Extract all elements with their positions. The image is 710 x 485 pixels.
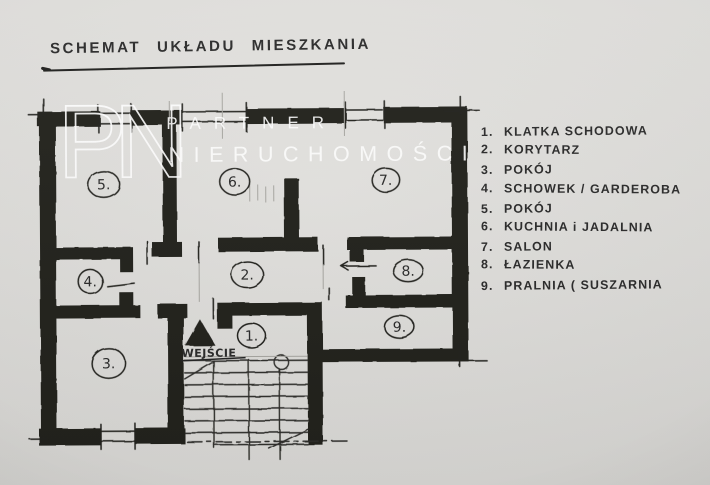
legend-item-number: 4. — [481, 181, 497, 196]
legend-item-label: PRALNIA ( SUSZARNIA — [504, 277, 663, 293]
legend-item-number: 9. — [481, 278, 497, 293]
legend-item-number: 6. — [481, 219, 497, 234]
legend-item-number: 1. — [481, 125, 497, 140]
room-numbers: 1. 2. 3. 4. 5. 6. 7. 8. 9. — [83, 173, 415, 373]
legend-item: 2.KORYTARZ — [481, 142, 706, 158]
legend-item-number: 3. — [481, 163, 497, 178]
legend: 1.KLATKA SCHODOWA 2.KORYTARZ 3.POKÓJ 4.S… — [481, 124, 706, 297]
legend-item: 5.POKÓJ — [481, 200, 706, 217]
room-number-3: 3. — [102, 356, 115, 372]
watermark-monogram: PN — [57, 84, 181, 201]
room-number-1: 1. — [245, 329, 258, 345]
room-number-9: 9. — [393, 320, 406, 336]
legend-item-label: ŁAZIENKA — [504, 258, 576, 273]
legend-item: 9.PRALNIA ( SUSZARNIA — [481, 277, 706, 294]
room-number-2: 2. — [240, 268, 253, 284]
legend-item-label: SALON — [504, 239, 553, 254]
entrance-label-group: WEJŚCIE — [181, 347, 246, 361]
legend-item-label: POKÓJ — [504, 201, 553, 216]
legend-item-label: KLATKA SCHODOWA — [504, 124, 648, 140]
entrance-arrow-icon — [185, 320, 215, 346]
legend-item: 1.KLATKA SCHODOWA — [481, 123, 706, 140]
legend-item-label: KORYTARZ — [504, 143, 580, 158]
watermark-text-partner: PARTNER — [166, 113, 337, 133]
legend-item-number: 2. — [481, 142, 497, 157]
legend-item-number: 5. — [481, 202, 497, 217]
staircase — [185, 355, 349, 460]
cut-line — [187, 441, 348, 442]
stair-newel — [275, 355, 289, 369]
legend-item-label: SCHOWEK / GARDEROBA — [504, 181, 681, 197]
legend-item-label: KUCHNIA i JADALNIA — [504, 219, 654, 235]
legend-item-number: 8. — [481, 258, 497, 273]
legend-item-label: POKÓJ — [504, 163, 553, 178]
room-number-4: 4. — [83, 274, 96, 290]
legend-item: 4.SCHOWEK / GARDEROBA — [481, 181, 706, 197]
room-number-7: 7. — [379, 173, 392, 189]
legend-item: 6.KUCHNIA i JADALNIA — [481, 219, 706, 235]
legend-item: 3.POKÓJ — [481, 161, 706, 178]
watermark-text-nieruchomosci: NIERUCHOMOŚCI — [168, 140, 477, 167]
floorplan-sketch-photo: SCHEMAT UKŁADU MIESZKANIA — [0, 0, 710, 485]
room-number-6: 6. — [228, 175, 241, 191]
watermark-logo: PN PARTNER NIERUCHOMOŚCI — [57, 82, 477, 200]
legend-item: 8.ŁAZIENKA — [481, 258, 706, 274]
legend-item: 7.SALON — [481, 238, 706, 255]
room-number-8: 8. — [401, 264, 414, 280]
legend-item-number: 7. — [481, 240, 497, 255]
